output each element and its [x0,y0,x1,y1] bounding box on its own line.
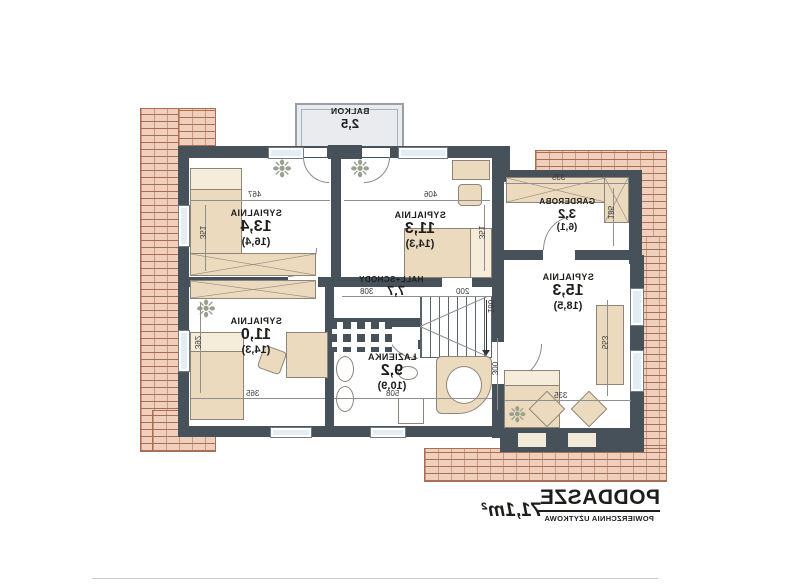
window-left-2 [178,330,190,372]
room-label-sypialnia-2: SYPIALNIA 11,3 (14,3) [360,210,480,250]
room-floor-area: (16,4) [196,236,316,248]
wall-bottom-left [178,426,512,437]
room-floor-area: (10,9) [330,380,454,392]
roof-window-1 [514,429,550,451]
door-gap-garderoba [543,250,575,260]
room-label-sypialnia-3: SYPIALNIA 15,3 (18,5) [506,272,630,312]
dimension-label: 553 [600,336,609,349]
title-subtitle: POWIERZCHNIA UŻYTKOWA [536,514,662,523]
roof-hatch-bottom-right [424,448,667,482]
dim-line [505,400,631,401]
window-left-1 [178,205,190,247]
room-label-garderoba: GARDEROBA 3,2 (6,1) [512,198,622,233]
room-area: 11,0 [196,326,316,344]
dim-line [334,398,492,399]
bathroom-counter [332,322,392,352]
dim-line [342,296,492,297]
room-area: 15,3 [506,282,630,300]
room-floor-area: (18,5) [506,300,630,312]
window-right-2 [630,350,644,392]
wall-left [178,146,189,437]
dimension-label: 200 [456,287,469,296]
wardrobe [190,253,316,276]
page-title: PODDASZE [540,486,660,510]
plant-icon: ❉ [350,158,370,182]
dimension-label: 467 [248,190,261,199]
floor-plan: ❉ ❉ ❉ ❉ 467 406 335 351 351 185 553 335 [0,0,800,586]
dim-line [190,398,325,399]
dim-line [344,200,490,201]
room-area: 13,4 [196,218,316,236]
washing-machine [398,398,424,424]
dimension-label: 300 [490,362,499,375]
wall-center-vertical [492,146,504,438]
room-area: 2,5 [312,117,388,132]
room-floor-area: (14,3) [196,344,316,356]
door-gap-bedroom2 [442,277,472,287]
room-name: ŁAZIENKA [330,352,454,362]
room-label-lazienka: ŁAZIENKA 9,2 (10,9) [330,352,454,392]
dim-line [505,183,629,184]
room-floor-area: (6,1) [512,222,622,233]
room-label-sypialnia-4: SYPIALNIA 11,0 (14,3) [196,316,316,356]
bed-pillow [190,168,242,190]
wall-right-lower [630,255,644,437]
title-underline [537,510,660,512]
room-name: SYPIALNIA [196,316,316,326]
room-floor-area: (14,3) [360,238,480,250]
balcony-door-gap-left [303,148,327,157]
dimension-label: 365 [246,389,259,398]
room-name: SYPIALNIA [196,208,316,218]
page-edge-line [92,578,658,579]
window-top-2 [398,147,448,159]
dimension-label: 308 [360,287,373,296]
room-name: SYPIALNIA [506,272,630,282]
usable-area-value: 71,1m² [482,500,542,522]
window-bottom-2 [370,427,406,438]
dimension-label: 406 [424,190,437,199]
bed-pillow [504,370,560,386]
room-area: 3,2 [512,207,622,222]
chair [458,184,482,206]
hall-area-label: 7,7 [376,284,416,299]
staircase [420,296,492,358]
room-area: 9,2 [330,362,454,380]
window-bottom-1 [270,427,312,438]
plant-icon: ❉ [272,158,292,182]
balcony-label: BALKON 2,5 [312,107,388,131]
plant-icon: ❉ [508,404,526,426]
roof-window-2 [564,429,600,451]
room-area: 11,3 [360,220,480,238]
wall-bedrooms-divider [331,146,341,287]
desk [452,160,490,180]
dim-line [190,200,330,201]
dimension-label: 335 [552,173,565,182]
roof-hatch-left-strip [140,108,179,452]
dimension-label: 180 [486,300,495,313]
room-label-sypialnia-1: SYPIALNIA 13,4 (16,4) [196,208,316,248]
window-right-1 [630,288,644,326]
dimension-label: 335 [554,391,567,400]
room-name: SYPIALNIA [360,210,480,220]
room-area: 7,7 [376,284,416,299]
